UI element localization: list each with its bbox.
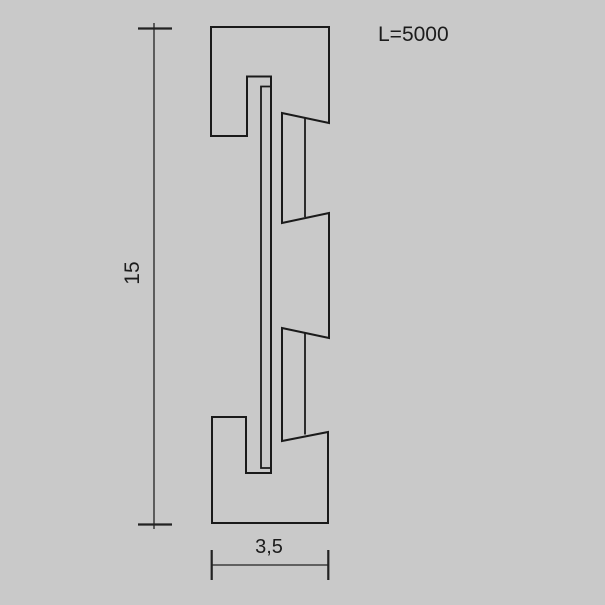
- width-dimension-label: 3,5: [255, 536, 283, 558]
- height-dimension-label: 15: [121, 261, 144, 284]
- profile-outline: [211, 27, 329, 523]
- length-label: L=5000: [378, 23, 449, 46]
- profile-section-drawing: 15 3,5 L=5000: [0, 0, 605, 605]
- technical-drawing-canvas: 15 3,5 L=5000: [0, 0, 605, 605]
- trim-strip-inner-line: [261, 87, 272, 469]
